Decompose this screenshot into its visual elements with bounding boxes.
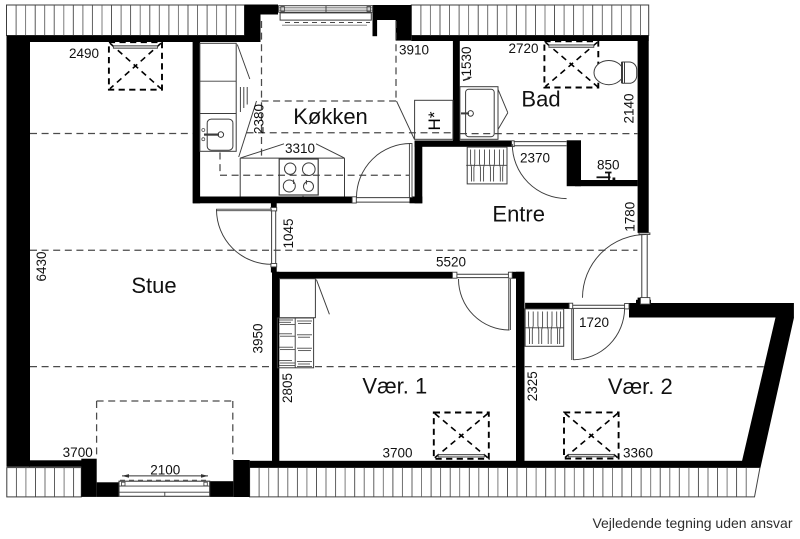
svg-text:1780: 1780 bbox=[623, 202, 638, 232]
svg-text:1045: 1045 bbox=[281, 218, 296, 248]
svg-text:2805: 2805 bbox=[280, 373, 295, 403]
svg-text:Entre: Entre bbox=[492, 202, 545, 227]
svg-text:2380: 2380 bbox=[252, 104, 267, 134]
svg-text:3700: 3700 bbox=[63, 445, 93, 460]
svg-text:3310: 3310 bbox=[285, 141, 315, 156]
svg-text:Stue: Stue bbox=[131, 273, 176, 298]
svg-text:2370: 2370 bbox=[520, 151, 550, 166]
svg-text:2325: 2325 bbox=[525, 371, 540, 401]
svg-text:2100: 2100 bbox=[150, 462, 180, 477]
svg-text:2490: 2490 bbox=[69, 46, 99, 61]
svg-text:5520: 5520 bbox=[436, 255, 466, 270]
svg-text:3950: 3950 bbox=[251, 323, 266, 353]
svg-text:6430: 6430 bbox=[34, 251, 49, 281]
svg-text:2140: 2140 bbox=[622, 93, 637, 123]
svg-text:2720: 2720 bbox=[508, 41, 538, 56]
svg-text:Køkken: Køkken bbox=[293, 104, 368, 129]
svg-text:1720: 1720 bbox=[579, 315, 609, 330]
svg-text:3700: 3700 bbox=[382, 446, 412, 461]
svg-text:1530: 1530 bbox=[459, 46, 474, 76]
svg-text:Bad: Bad bbox=[521, 87, 560, 112]
svg-text:3360: 3360 bbox=[623, 446, 653, 461]
svg-text:H*: H* bbox=[425, 111, 444, 130]
svg-text:Vær. 2: Vær. 2 bbox=[608, 374, 673, 399]
svg-text:Vejledende tegning uden ansvar: Vejledende tegning uden ansvar bbox=[592, 515, 792, 531]
svg-text:850: 850 bbox=[597, 157, 620, 172]
svg-text:3910: 3910 bbox=[399, 42, 429, 57]
svg-text:Vær. 1: Vær. 1 bbox=[362, 374, 427, 399]
